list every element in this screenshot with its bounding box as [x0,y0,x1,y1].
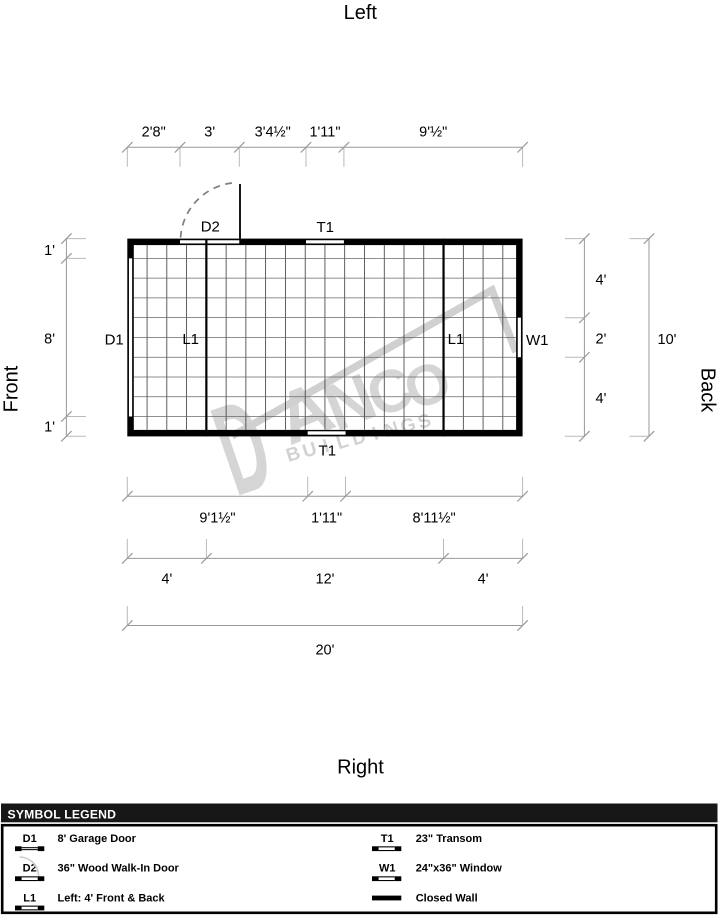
svg-text:W1: W1 [526,332,549,349]
svg-text:20': 20' [315,642,334,658]
svg-text:1': 1' [44,243,55,259]
svg-text:D2: D2 [201,219,220,236]
svg-text:Closed Wall: Closed Wall [416,893,478,905]
svg-text:8'11½": 8'11½" [413,510,456,526]
svg-text:Left: Left [344,2,378,24]
svg-text:4': 4' [596,391,607,407]
svg-text:Back: Back [696,368,718,413]
svg-text:12': 12' [316,571,335,587]
svg-text:24"x36" Window: 24"x36" Window [416,863,503,875]
svg-text:8': 8' [44,332,55,348]
svg-text:1': 1' [44,419,55,435]
svg-text:W1: W1 [379,863,396,875]
svg-text:D1: D1 [105,332,124,349]
svg-text:4': 4' [161,571,172,587]
svg-text:1'11": 1'11" [311,510,342,526]
svg-text:9'1½": 9'1½" [199,510,235,526]
svg-text:10': 10' [658,332,677,348]
svg-text:T1: T1 [381,833,394,845]
svg-text:Right: Right [337,757,384,779]
svg-text:L1: L1 [182,331,199,348]
svg-text:3': 3' [204,125,215,141]
svg-text:2': 2' [596,332,607,348]
svg-text:23" Transom: 23" Transom [416,833,483,845]
svg-text:T1: T1 [319,442,337,459]
svg-text:T1: T1 [316,219,334,236]
svg-text:3'4½": 3'4½" [255,125,291,141]
svg-text:L1: L1 [448,331,465,348]
svg-text:8' Garage Door: 8' Garage Door [58,833,137,845]
svg-text:36" Wood Walk-In Door: 36" Wood Walk-In Door [58,863,180,875]
svg-text:SYMBOL LEGEND: SYMBOL LEGEND [8,808,117,822]
svg-text:Front: Front [0,365,22,412]
svg-text:4': 4' [478,571,489,587]
svg-text:1'11": 1'11" [309,125,340,141]
svg-text:L1: L1 [23,893,36,905]
svg-text:D1: D1 [23,833,37,845]
svg-text:9'½": 9'½" [419,125,447,141]
svg-text:2'8": 2'8" [142,125,166,141]
svg-text:4': 4' [596,272,607,288]
svg-text:Left: 4' Front & Back: Left: 4' Front & Back [58,893,166,905]
